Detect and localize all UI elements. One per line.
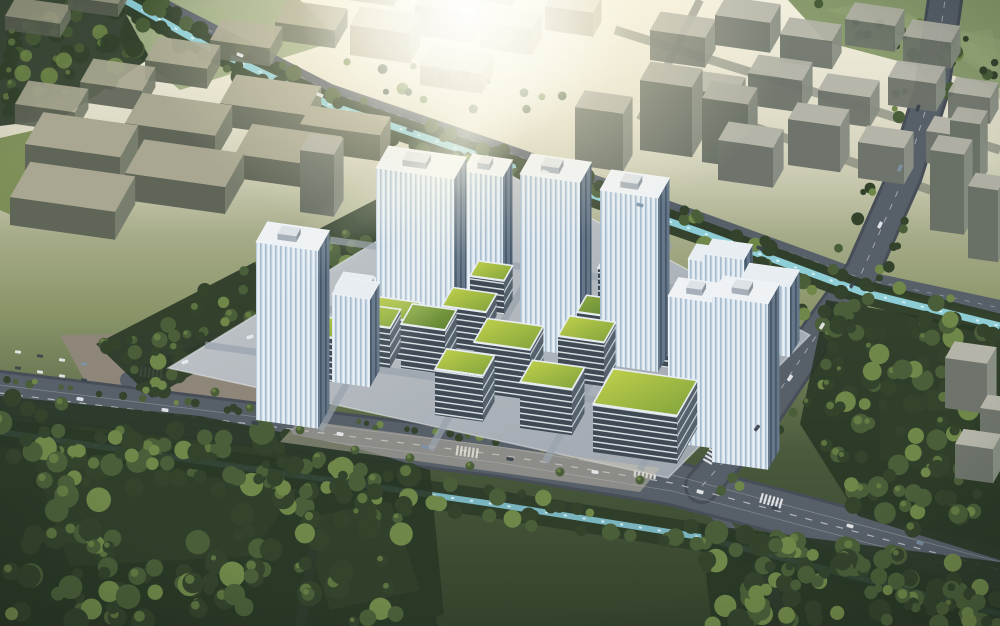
campus-aerial-scene bbox=[0, 0, 1000, 626]
vignette bbox=[0, 0, 1000, 626]
aerial-architectural-render bbox=[0, 0, 1000, 626]
sun-glare bbox=[0, 0, 1000, 626]
